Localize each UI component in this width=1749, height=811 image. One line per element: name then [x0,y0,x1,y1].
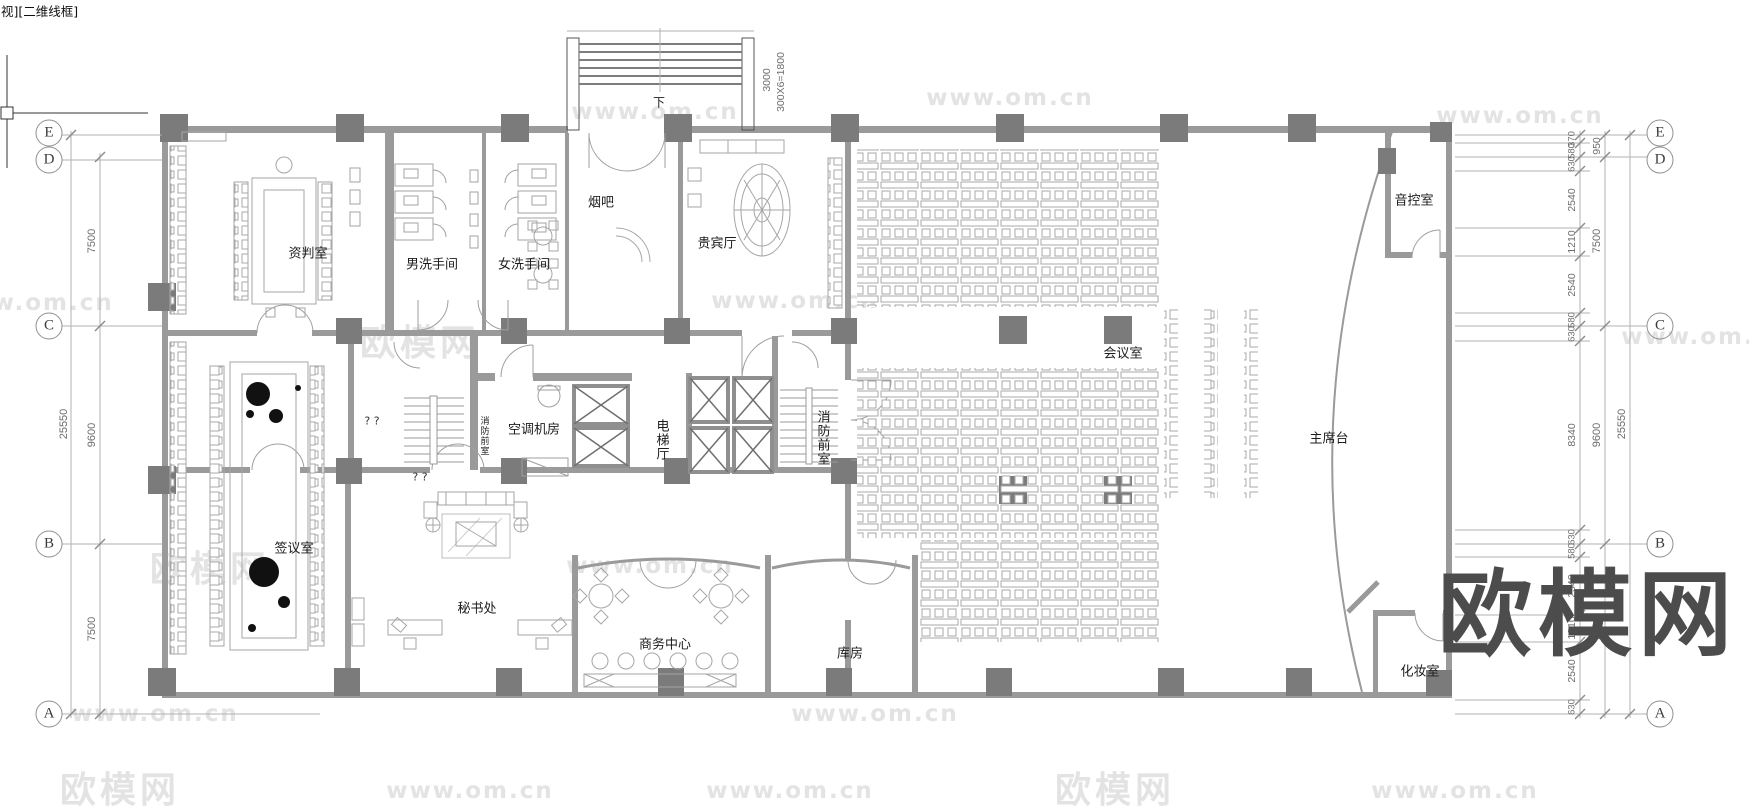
dim-right-detail: 1210 [1566,230,1578,253]
dim-entrance-landing: 3000 [761,68,773,91]
room-label-business-center: 商务中心 [639,634,691,653]
grid-label-b-left: B [44,536,54,553]
grid-label-c-left: C [44,318,54,335]
ucs-origin-icon [1,55,148,168]
signing-furniture [170,342,324,654]
cad-viewport: www.om.cn www.om.cn www.om.cn www.om.cn … [0,0,1749,811]
floorplan-drawing [0,0,1749,811]
grid-label-a-right: A [1655,706,1666,723]
grid-label-e-left: E [44,125,53,142]
vip-hall-furniture [688,140,842,308]
entrance-stair [567,28,754,130]
dim-left-span-1: 7500 [86,229,98,253]
dim-left-span-2: 9600 [86,423,98,447]
room-label-conference: 会议室 [1103,343,1142,362]
room-label-audio-control: 音控室 [1394,190,1433,209]
question-marks: ? ? [364,415,379,428]
dim-entrance-steps: 300X6=1800 [775,52,787,112]
dim-right-detail: 630 [1567,156,1578,172]
room-label-secretariat: 秘书处 [457,598,496,617]
secretariat-furniture [352,492,572,649]
grid-label-d-left: D [44,152,55,169]
dim-right-span-3: 9600 [1591,423,1603,447]
negotiation-furniture [170,132,332,317]
room-label-signing: 签议室 [274,538,313,557]
room-label-elevator-hall: 电梯厅 [652,419,671,461]
grid-label-e-right: E [1655,125,1664,142]
room-label-womens-wc: 女洗手间 [498,254,550,273]
dim-right-span-2: 7500 [1591,229,1603,253]
restroom-fixtures [350,164,556,248]
room-label-fire-lobby-small: 消防前室 [478,416,491,456]
dimension-lines [62,130,1647,719]
grid-label-d-right: D [1655,152,1666,169]
room-label-vip-hall: 贵宾厅 [697,233,736,252]
room-label-hvac: 空调机房 [508,419,560,438]
dim-left-span-3: 7500 [86,617,98,641]
dim-right-detail: 630 [1567,326,1578,342]
room-label-storeroom: 库房 [837,643,863,662]
room-label-fire-lobby: 消防前室 [813,410,832,466]
dim-right-span-1: 950 [1591,137,1603,155]
elevator-shafts [574,378,772,472]
room-label-dressing: 化妆室 [1400,661,1439,680]
dim-right-total: 25550 [1616,409,1628,440]
grid-label-a-left: A [44,706,55,723]
room-label-rostrum: 主席台 [1309,428,1348,447]
dim-right-detail: 630 [1567,699,1578,715]
dim-right-detail: 8340 [1566,423,1578,446]
dim-left-total: 25550 [58,409,70,440]
dim-right-detail: 2540 [1566,188,1578,211]
dim-right-detail: 2540 [1566,273,1578,296]
watermark-brand-large: 欧模网 [1438,539,1738,675]
question-marks: ? ? [412,471,427,484]
grid-label-c-right: C [1655,318,1665,335]
stair-down-label: 下 [653,94,665,111]
room-label-smoking-bar: 烟吧 [588,192,614,211]
room-label-negotiation: 资判室 [288,243,327,262]
viewport-mode-label: 视][二维线框] [1,1,78,20]
room-label-mens-wc: 男洗手间 [406,254,458,273]
